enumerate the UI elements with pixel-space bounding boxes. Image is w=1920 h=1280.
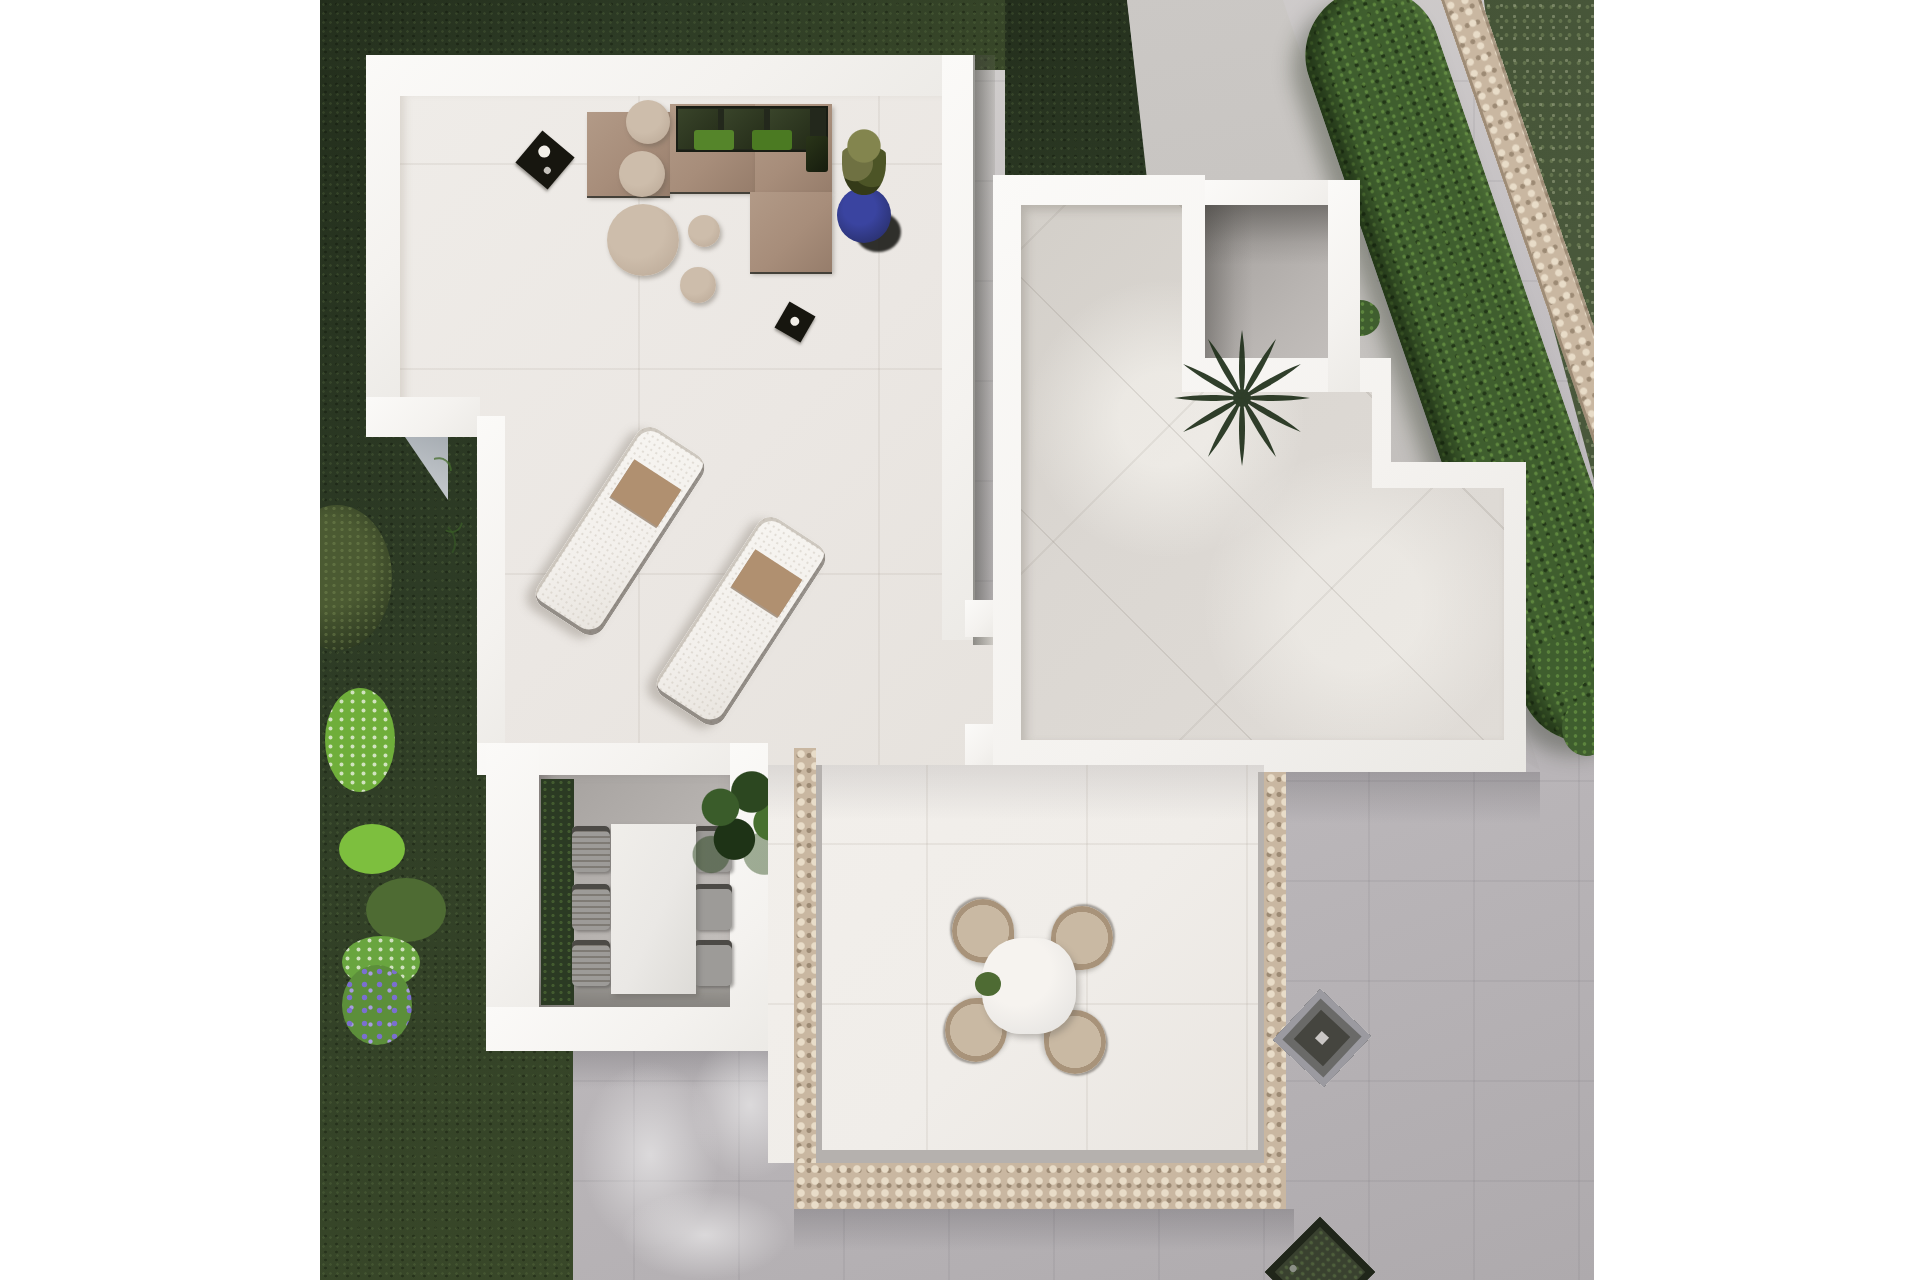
aerial-view bbox=[320, 0, 1594, 1280]
curb bbox=[816, 1150, 1264, 1163]
wall-pillar bbox=[965, 600, 993, 637]
terrace-wall-top bbox=[366, 55, 975, 96]
blue-plant-pot bbox=[837, 187, 891, 243]
flower-bush-purple bbox=[342, 965, 412, 1045]
dining-chair bbox=[694, 884, 732, 930]
green-pillow bbox=[752, 130, 792, 150]
lounger-towel bbox=[731, 549, 802, 616]
dining-table bbox=[611, 824, 696, 994]
pouf bbox=[626, 100, 670, 144]
wall-shadow bbox=[794, 1209, 1294, 1251]
pebble-border-right bbox=[1264, 772, 1286, 1209]
light-streak bbox=[620, 1190, 790, 1280]
palm-tree-icon bbox=[1167, 323, 1317, 473]
green-pillow bbox=[694, 130, 734, 150]
flower-bush-white bbox=[325, 688, 395, 792]
terrace-wall-left bbox=[366, 55, 400, 417]
pebble-border-left bbox=[794, 748, 816, 1209]
curb bbox=[1258, 772, 1264, 1163]
dining-chair bbox=[572, 826, 610, 872]
dark-arm-pillow bbox=[806, 136, 828, 172]
small-bush bbox=[975, 972, 1001, 996]
courtyard-wall-left bbox=[486, 743, 539, 1051]
render-canvas bbox=[0, 0, 1920, 1280]
bush-lime bbox=[339, 824, 405, 874]
hedge-clump bbox=[1535, 640, 1591, 692]
sofa-module-chaise bbox=[750, 192, 832, 272]
dining-chair bbox=[694, 940, 732, 986]
terrace-wall-right bbox=[942, 55, 975, 640]
palm-courtyard-wall-right bbox=[1328, 180, 1360, 392]
pouf bbox=[688, 215, 720, 247]
lounger-towel bbox=[610, 459, 681, 526]
terrace-wall-left-lower bbox=[477, 416, 505, 775]
pouf bbox=[680, 267, 716, 303]
pouf bbox=[619, 151, 665, 197]
pebble-border-bottom bbox=[794, 1163, 1286, 1209]
olive-plant bbox=[842, 125, 886, 195]
courtyard-hedge-strip bbox=[541, 779, 574, 1005]
terrace-wall-step bbox=[366, 397, 480, 437]
courtyard-wall-bottom bbox=[486, 1007, 768, 1051]
round-ottoman bbox=[607, 204, 679, 276]
dining-chair bbox=[572, 940, 610, 986]
roof-gap-shadow bbox=[973, 55, 995, 645]
dining-chair bbox=[572, 884, 610, 930]
curb bbox=[816, 765, 822, 1163]
bush-dark bbox=[366, 878, 446, 942]
